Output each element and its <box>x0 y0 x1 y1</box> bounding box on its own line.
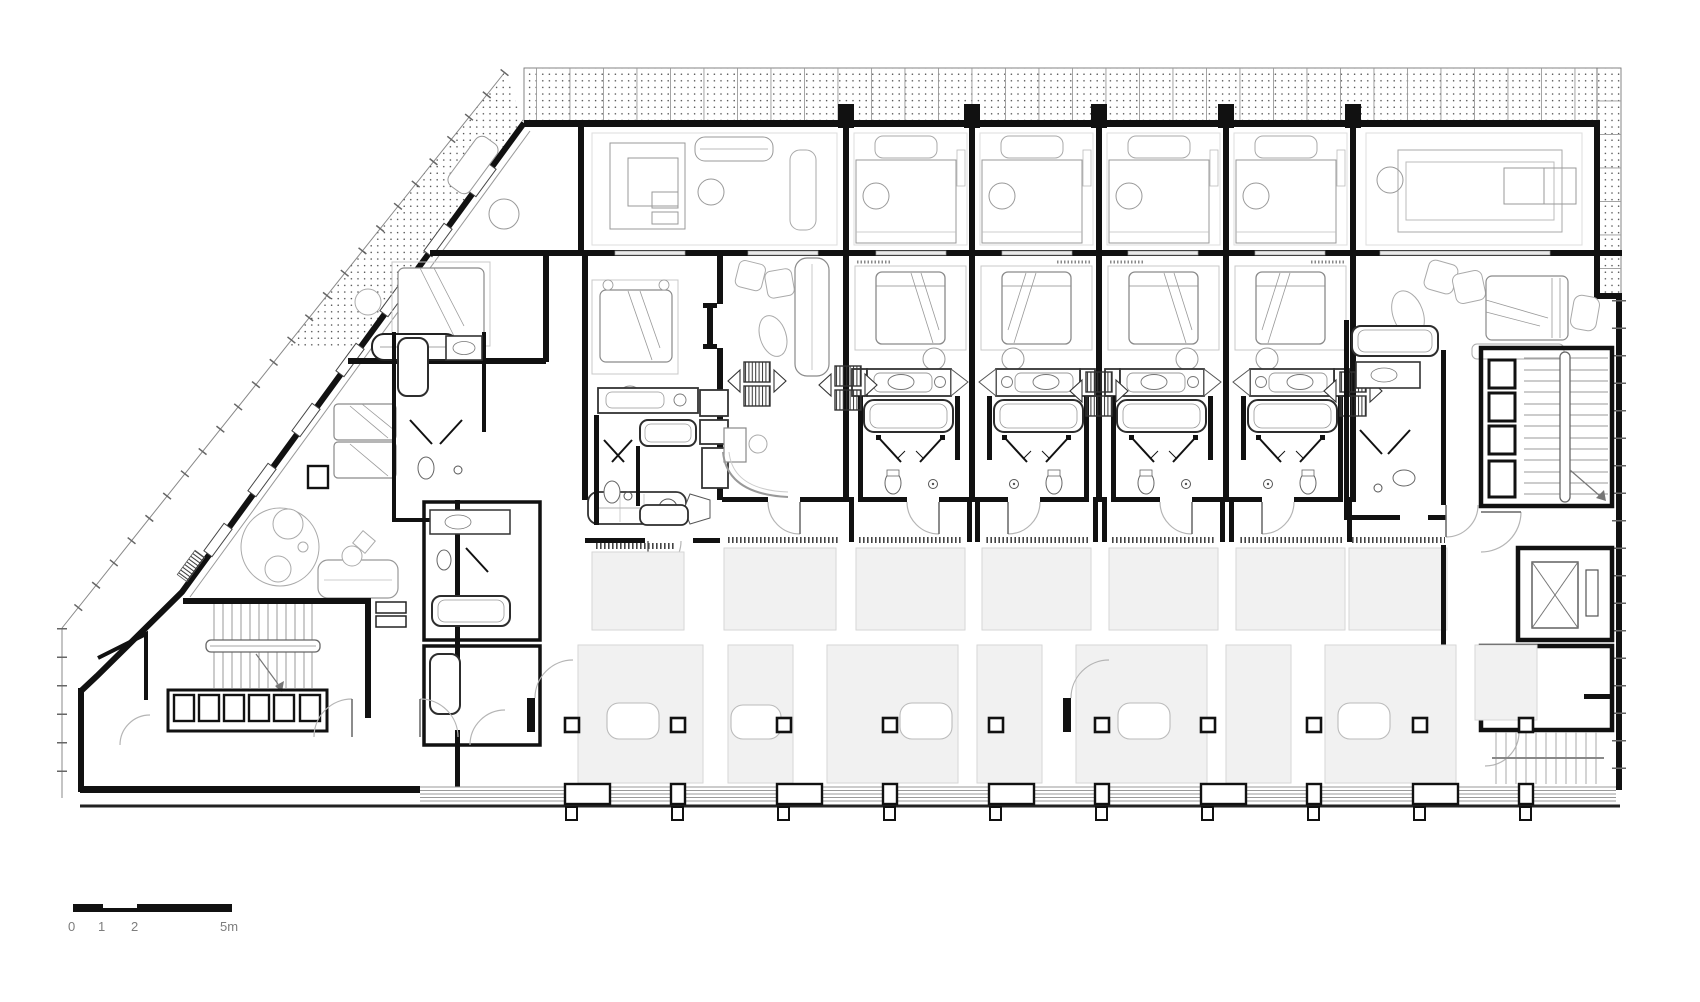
glazed-facade <box>80 784 1620 820</box>
guest-room-module <box>849 262 972 630</box>
floor-plan-svg <box>0 0 1700 1002</box>
loggia-module <box>854 133 967 245</box>
lounge-module <box>722 258 845 630</box>
elevator <box>1518 548 1612 640</box>
loggia-large-left <box>592 133 837 245</box>
scale-bar-segment <box>137 904 232 912</box>
lower-hall-rugs <box>578 645 1537 783</box>
loggia-large-right <box>1366 133 1582 245</box>
guest-room-module <box>1229 262 1352 630</box>
escape-stair-icon <box>1492 732 1604 784</box>
suite-center <box>585 280 728 630</box>
scale-tick-5m: 5m <box>220 920 238 933</box>
guest-room-module <box>975 262 1098 630</box>
pivot-door-icon <box>703 303 717 349</box>
loggia-module <box>1107 133 1220 245</box>
service-bathrooms-west <box>424 500 540 787</box>
scale-tick-1: 1 <box>98 920 105 933</box>
loggia-module <box>1234 133 1347 245</box>
loggia-module <box>980 133 1093 245</box>
guest-room-module <box>1102 262 1225 630</box>
stair-core-right <box>1481 348 1612 552</box>
scale-tick-2: 2 <box>131 920 138 933</box>
scale-bar-segment <box>103 908 137 912</box>
scale-bar-segment <box>73 904 103 912</box>
locker-row <box>168 690 327 731</box>
facade-pier-stubs <box>566 807 1531 820</box>
floor-plan-canvas: 0 1 2 5m <box>0 0 1700 1002</box>
duct-shaft-icon <box>728 362 786 406</box>
scale-tick-0: 0 <box>68 920 75 933</box>
